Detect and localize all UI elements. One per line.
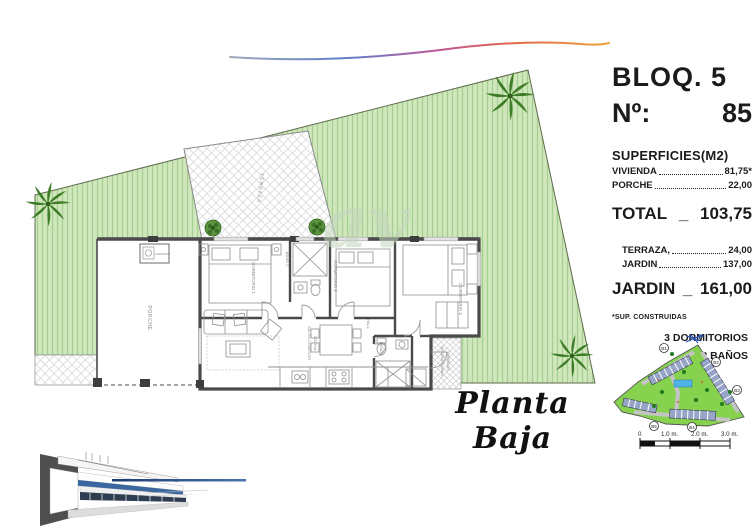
site-pool [674,380,692,387]
jardin-row-label: JARDIN [622,259,657,270]
salon-label-2: COCINA [313,336,317,351]
scale-0: 0 [638,431,642,438]
terraza-row: TERRAZA, 24,00 [622,245,752,256]
acceso-label-1: ACCESO COMUN [440,346,444,376]
vivienda-label: VIVIENDA [612,166,657,177]
plan-caption: Planta Baja [425,386,600,456]
bush-icon [309,219,325,235]
jardin-row: JARDIN 137,00 [622,259,752,270]
hall-label: HALL [366,319,371,330]
scale-3m: 3.0 m. [721,431,738,438]
dotted-leader [659,174,723,175]
scale-labels: 0 1.0 m. 2.0 m. 3.0 m. [638,431,738,438]
dotted-leader [672,253,726,254]
paving-strip [35,355,97,385]
jardin-total-label: JARDIN [612,279,675,299]
jardin-row-value: 137,00 [723,259,752,270]
blue-line-graphic [112,479,246,482]
scale-bar-segments [640,438,730,449]
jardin-total-value: 161,00 [700,279,752,299]
bush-icon [205,220,221,236]
total-label: TOTAL [612,204,667,224]
dotted-leader [655,188,727,189]
total-separator: _ [679,204,688,224]
dotted-leader [659,267,721,268]
surfaces-footnote: *SUP. CONSTRUIDAS [612,314,752,321]
dormitorio1-label: DORMITORIO 1 [251,262,256,294]
site-map: B1 B2 B3 B4 B5 [612,332,754,432]
unit-number-row: Nº: 85 [612,98,752,129]
outdoor-rows: TERRAZA, 24,00 JARDIN 137,00 [612,245,752,270]
site-label-b2: B2 [713,360,719,365]
acceso-area: ACCESO COMUN VIVIENDAS [431,338,461,389]
scale-1m: 1.0 m. [661,431,678,438]
building-plan: ACCESO COMUN VIVIENDAS [93,236,481,389]
lavadero-room: LAVADERO [140,244,171,263]
site-label-b3: B3 [734,388,740,393]
plan-sheet: TERRAZA ACCESO COMUN VIVIENDAS [0,0,756,528]
bano2-label: BAÑO 2 [285,252,290,267]
porche-row-value: 22,00 [728,180,752,191]
jardin-total-separator: _ [683,279,692,299]
vivienda-value: 81,75* [725,166,752,177]
site-label-b1: B1 [661,346,667,351]
unit-number-value: 85 [722,98,752,129]
total-row: TOTAL _ 103,75 [612,204,752,224]
block-title: BLOQ. 5 [612,62,752,93]
surfaces-title: SUPERFICIES(M2) [612,148,752,163]
unit-number-label: Nº: [612,98,650,129]
bano1-label: BAÑO 1 [379,342,384,357]
scale-2m: 2.0 m. [691,431,708,438]
dormitorio3-label: DORMITORIO 3 [458,283,463,315]
porche-label: PORCHE [146,306,152,331]
terraza-row-label: TERRAZA, [622,245,670,256]
total-value: 103,75 [700,204,752,224]
compass-icon [686,334,704,343]
info-panel: BLOQ. 5 Nº: 85 SUPERFICIES(M2) VIVIENDA … [612,62,752,366]
salon-label-1: SALON-COMEDOR [307,326,311,360]
scale-bar: 0 1.0 m. 2.0 m. 3.0 m. [634,429,750,453]
building-3d [40,452,208,526]
vivienda-row: VIVIENDA 81,75* [612,166,752,177]
porche-row: PORCHE 22,00 [612,180,752,191]
jardin-total-row: JARDIN _ 161,00 [612,279,752,299]
dormitorio2-label: DORMITORIO 2 [333,260,338,292]
lavadero-label: LAVADERO [154,252,171,256]
building-render [28,438,250,526]
terraza-row-value: 24,00 [728,245,752,256]
porche-row-label: PORCHE [612,180,653,191]
